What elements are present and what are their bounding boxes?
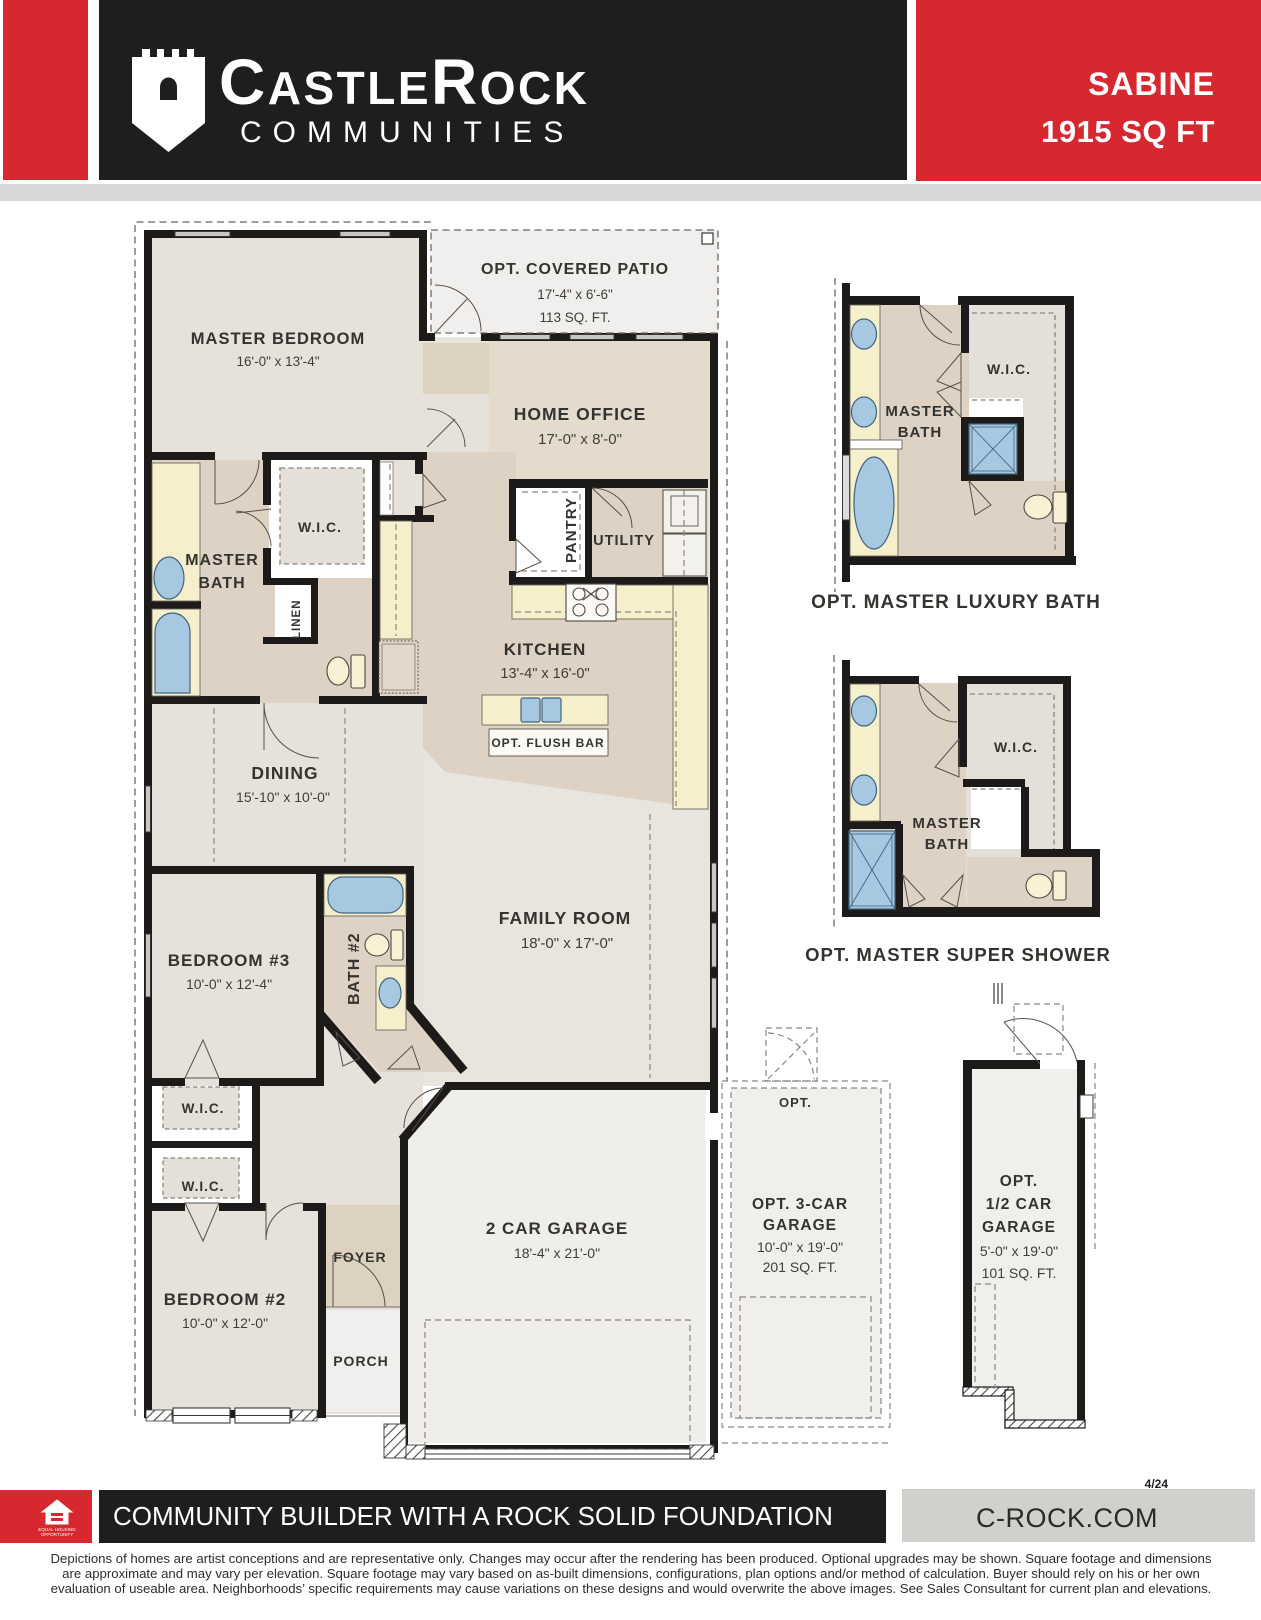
svg-text:BEDROOM #3: BEDROOM #3: [168, 951, 290, 970]
svg-text:FAMILY ROOM: FAMILY ROOM: [499, 908, 632, 928]
svg-text:PORCH: PORCH: [333, 1353, 389, 1369]
svg-text:W.I.C.: W.I.C.: [182, 1101, 225, 1116]
svg-text:4/24: 4/24: [1145, 1477, 1169, 1491]
svg-text:W.I.C.: W.I.C.: [987, 361, 1031, 377]
svg-text:BATH: BATH: [198, 575, 245, 592]
svg-text:BATH #2: BATH #2: [346, 933, 363, 1006]
svg-text:15'-10" x 10'-0": 15'-10" x 10'-0": [236, 789, 330, 805]
svg-text:OPT. 3-CAR: OPT. 3-CAR: [752, 1196, 848, 1213]
svg-text:Depictions of homes are artist: Depictions of homes are artist conceptio…: [51, 1551, 1212, 1566]
svg-text:COMMUNITIES: COMMUNITIES: [240, 116, 574, 149]
svg-text:5'-0" x 19'-0": 5'-0" x 19'-0": [980, 1243, 1058, 1259]
svg-text:10'-0" x 12'-4": 10'-0" x 12'-4": [186, 976, 272, 992]
svg-text:BATH: BATH: [898, 424, 943, 441]
svg-text:W.I.C.: W.I.C.: [182, 1179, 225, 1194]
svg-text:FOYER: FOYER: [333, 1249, 386, 1265]
svg-text:C-ROCK.COM: C-ROCK.COM: [976, 1503, 1158, 1533]
svg-text:101 SQ. FT.: 101 SQ. FT.: [982, 1265, 1057, 1281]
svg-text:113 SQ. FT.: 113 SQ. FT.: [539, 310, 610, 325]
svg-text:are approximate and may vary p: are approximate and may vary per elevati…: [62, 1566, 1200, 1581]
svg-text:OPT. MASTER LUXURY BATH: OPT. MASTER LUXURY BATH: [811, 592, 1101, 613]
svg-text:PANTRY: PANTRY: [563, 497, 580, 563]
svg-text:OPT. COVERED PATIO: OPT. COVERED PATIO: [481, 261, 669, 278]
svg-text:MASTER: MASTER: [185, 552, 259, 569]
svg-text:18'-0" x 17'-0": 18'-0" x 17'-0": [521, 935, 613, 952]
svg-text:KITCHEN: KITCHEN: [504, 640, 587, 659]
svg-text:10'-0" x 19'-0": 10'-0" x 19'-0": [757, 1239, 843, 1255]
svg-text:SABINE: SABINE: [1088, 66, 1215, 102]
svg-text:OPT. MASTER SUPER SHOWER: OPT. MASTER SUPER SHOWER: [805, 944, 1111, 965]
svg-text:13'-4" x 16'-0": 13'-4" x 16'-0": [500, 666, 589, 682]
svg-text:LINEN: LINEN: [291, 600, 303, 640]
svg-text:17'-0" x 8'-0": 17'-0" x 8'-0": [538, 431, 622, 448]
svg-text:GARAGE: GARAGE: [982, 1219, 1056, 1236]
svg-text:W.I.C.: W.I.C.: [994, 739, 1038, 755]
svg-text:MASTER: MASTER: [885, 403, 954, 420]
svg-text:HOME OFFICE: HOME OFFICE: [514, 404, 647, 424]
svg-text:201 SQ. FT.: 201 SQ. FT.: [763, 1259, 838, 1275]
svg-text:BATH: BATH: [925, 836, 970, 853]
svg-text:COMMUNITY BUILDER WITH A ROCK: COMMUNITY BUILDER WITH A ROCK SOLID FOUN…: [113, 1501, 833, 1531]
svg-text:16'-0" x 13'-4": 16'-0" x 13'-4": [236, 354, 319, 369]
svg-text:GARAGE: GARAGE: [763, 1217, 837, 1234]
svg-text:evaluation of useable area. Ne: evaluation of useable area. Neighborhood…: [51, 1581, 1212, 1596]
svg-text:OPPORTUNITY: OPPORTUNITY: [41, 1532, 73, 1537]
svg-text:UTILITY: UTILITY: [593, 533, 655, 549]
svg-text:OPT.: OPT.: [1000, 1173, 1038, 1190]
svg-text:10'-0" x 12'-0": 10'-0" x 12'-0": [182, 1315, 268, 1331]
svg-text:DINING: DINING: [251, 763, 318, 783]
svg-text:1/2 CAR: 1/2 CAR: [986, 1196, 1052, 1213]
svg-text:1915 SQ FT: 1915 SQ FT: [1041, 114, 1215, 149]
svg-text:18'-4" x 21'-0": 18'-4" x 21'-0": [514, 1245, 600, 1261]
svg-text:W.I.C.: W.I.C.: [298, 519, 342, 535]
svg-text:MASTER: MASTER: [912, 815, 981, 832]
svg-text:MASTER BEDROOM: MASTER BEDROOM: [191, 330, 365, 348]
svg-text:OPT. FLUSH BAR: OPT. FLUSH BAR: [491, 736, 604, 750]
svg-text:BEDROOM #2: BEDROOM #2: [164, 1290, 286, 1309]
svg-text:OPT.: OPT.: [779, 1095, 812, 1110]
svg-text:17'-4" x 6'-6": 17'-4" x 6'-6": [537, 287, 613, 302]
svg-text:2 CAR GARAGE: 2 CAR GARAGE: [486, 1219, 628, 1238]
